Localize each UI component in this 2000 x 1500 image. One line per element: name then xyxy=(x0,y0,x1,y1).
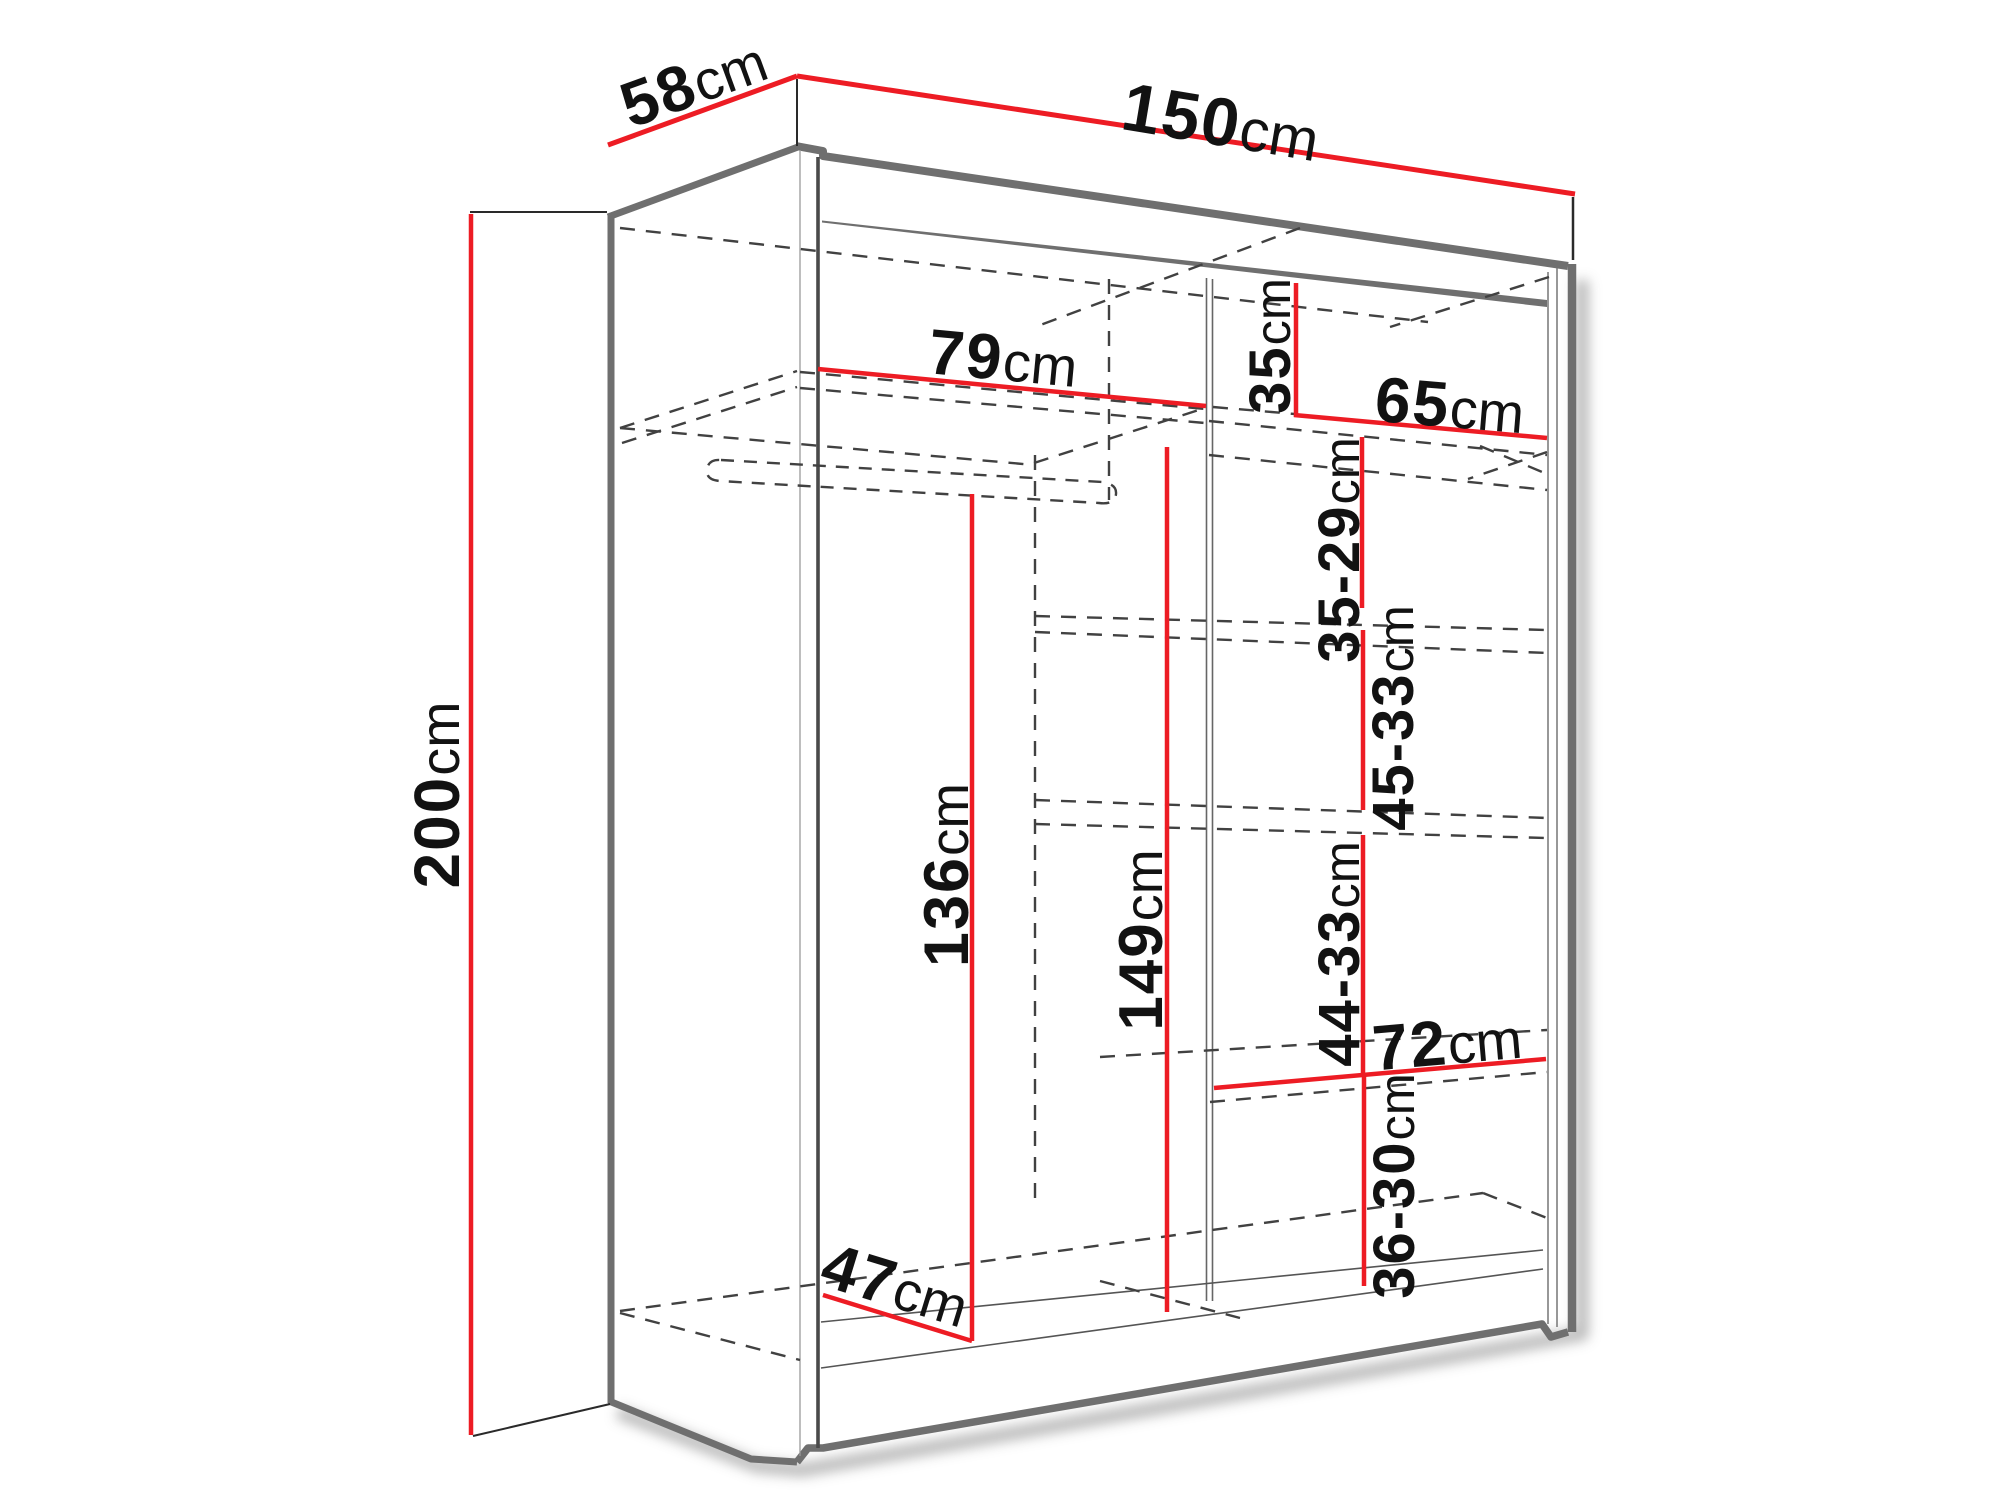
svg-text:65cm: 65cm xyxy=(1372,363,1527,447)
svg-text:150cm: 150cm xyxy=(1117,68,1325,176)
svg-text:136cm: 136cm xyxy=(912,783,982,967)
svg-text:36-30cm: 36-30cm xyxy=(1362,1073,1427,1299)
svg-text:79cm: 79cm xyxy=(925,315,1081,401)
svg-text:45-33cm: 45-33cm xyxy=(1361,605,1426,831)
svg-text:47cm: 47cm xyxy=(813,1229,977,1342)
svg-text:35cm: 35cm xyxy=(1238,278,1303,414)
svg-text:44-33cm: 44-33cm xyxy=(1307,841,1372,1067)
svg-text:72cm: 72cm xyxy=(1370,1000,1525,1085)
svg-text:149cm: 149cm xyxy=(1107,849,1176,1030)
svg-text:35-29cm: 35-29cm xyxy=(1307,437,1372,663)
svg-text:200cm: 200cm xyxy=(401,702,473,889)
svg-text:58cm: 58cm xyxy=(611,23,776,142)
